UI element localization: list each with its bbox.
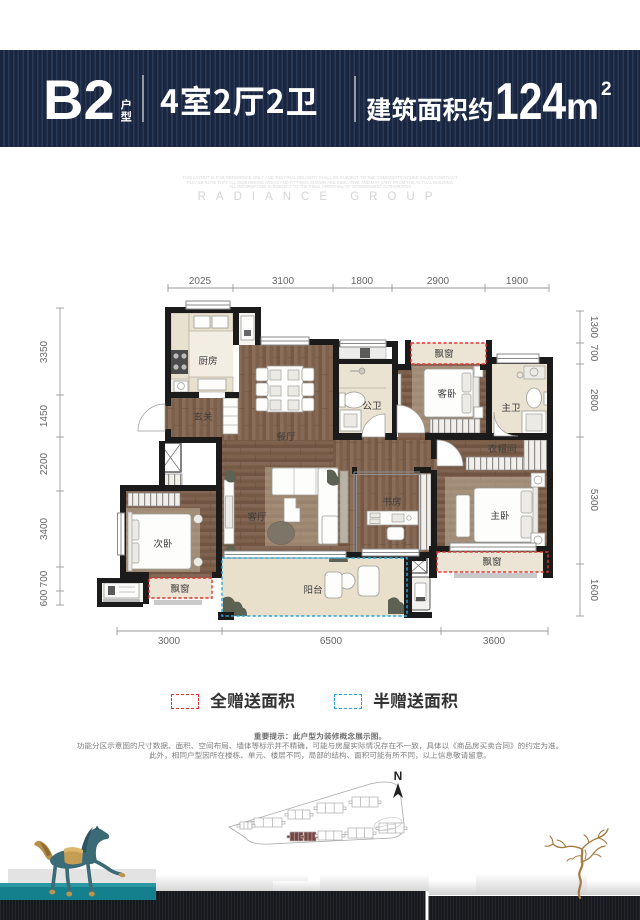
svg-text:N: N — [394, 769, 403, 783]
